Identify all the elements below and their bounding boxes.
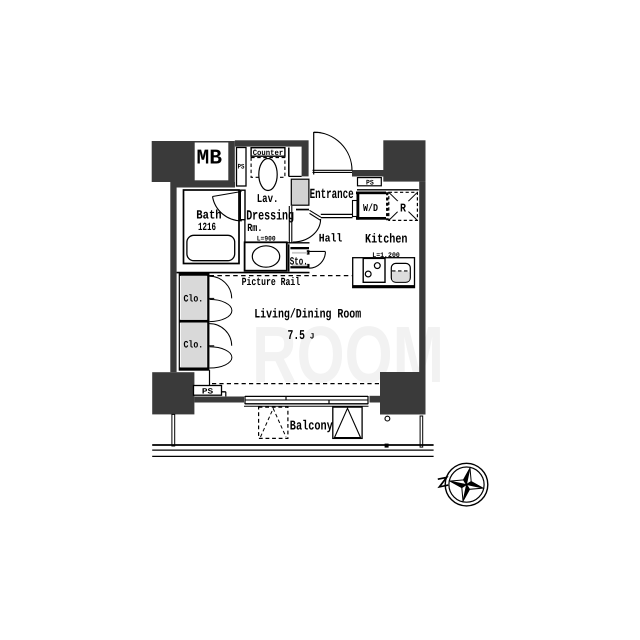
svg-text:MB: MB bbox=[197, 148, 223, 171]
svg-text:R: R bbox=[400, 202, 407, 216]
svg-text:W/D: W/D bbox=[363, 203, 378, 215]
svg-text:Lav.: Lav. bbox=[257, 192, 279, 206]
svg-text:PS: PS bbox=[238, 164, 245, 172]
svg-text:Balcony: Balcony bbox=[290, 419, 333, 434]
svg-text:Dressing: Dressing bbox=[246, 208, 294, 224]
svg-text:Bath: Bath bbox=[196, 209, 221, 223]
svg-text:Living/Dining Room: Living/Dining Room bbox=[254, 307, 361, 322]
svg-text:Rm.: Rm. bbox=[247, 223, 262, 235]
svg-text:1216: 1216 bbox=[198, 222, 216, 234]
svg-text:Kitchen: Kitchen bbox=[365, 232, 408, 247]
svg-text:Hall: Hall bbox=[319, 232, 343, 245]
svg-text:J: J bbox=[310, 333, 315, 342]
svg-text:Picture Rail: Picture Rail bbox=[242, 277, 301, 289]
svg-text:Sto.: Sto. bbox=[290, 256, 308, 268]
svg-text:Clo.: Clo. bbox=[184, 339, 204, 351]
svg-text:7.5: 7.5 bbox=[288, 329, 306, 344]
svg-text:Counter: Counter bbox=[253, 149, 284, 158]
svg-text:Entrance: Entrance bbox=[310, 187, 354, 203]
svg-text:PS: PS bbox=[202, 388, 214, 397]
svg-text:PS: PS bbox=[366, 180, 374, 188]
svg-text:Clo.: Clo. bbox=[184, 294, 204, 306]
